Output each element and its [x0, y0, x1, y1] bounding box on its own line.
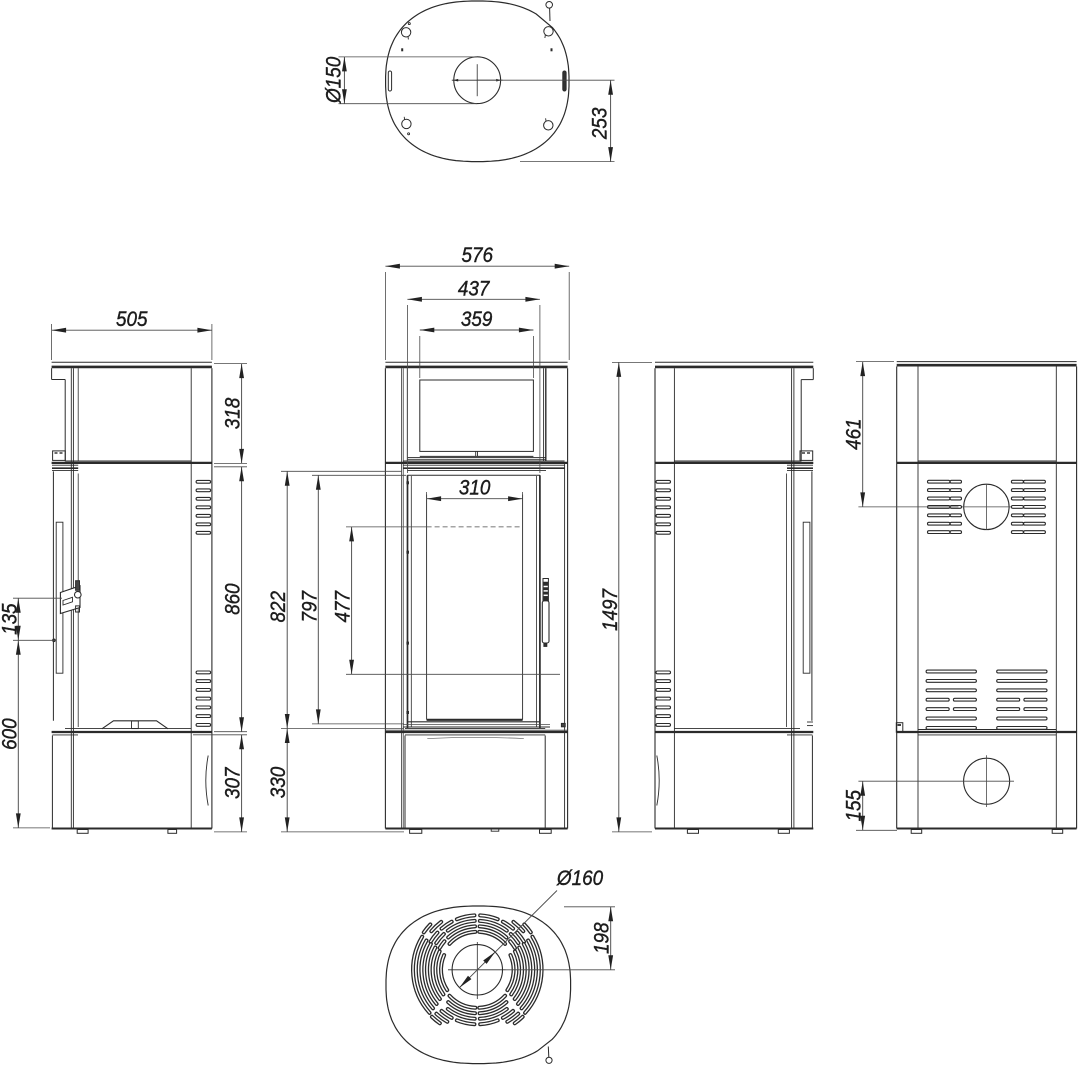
svg-text:477: 477 — [330, 590, 355, 622]
svg-text:822: 822 — [265, 591, 290, 623]
svg-text:461: 461 — [841, 418, 866, 450]
svg-text:198: 198 — [589, 923, 614, 955]
svg-text:797: 797 — [296, 590, 321, 622]
svg-text:307: 307 — [220, 767, 245, 799]
svg-text:359: 359 — [461, 306, 493, 331]
svg-text:310: 310 — [459, 475, 491, 500]
svg-text:Ø150: Ø150 — [321, 57, 346, 104]
svg-text:253: 253 — [586, 108, 611, 140]
svg-text:860: 860 — [220, 583, 245, 615]
svg-text:330: 330 — [265, 767, 290, 799]
svg-text:1497: 1497 — [597, 588, 622, 631]
svg-text:437: 437 — [458, 275, 490, 300]
svg-text:576: 576 — [462, 242, 494, 267]
svg-text:505: 505 — [116, 306, 148, 331]
svg-text:155: 155 — [841, 789, 866, 821]
svg-text:Ø160: Ø160 — [556, 865, 603, 890]
svg-text:318: 318 — [220, 398, 245, 430]
svg-text:135: 135 — [0, 603, 21, 635]
svg-text:600: 600 — [0, 718, 21, 750]
